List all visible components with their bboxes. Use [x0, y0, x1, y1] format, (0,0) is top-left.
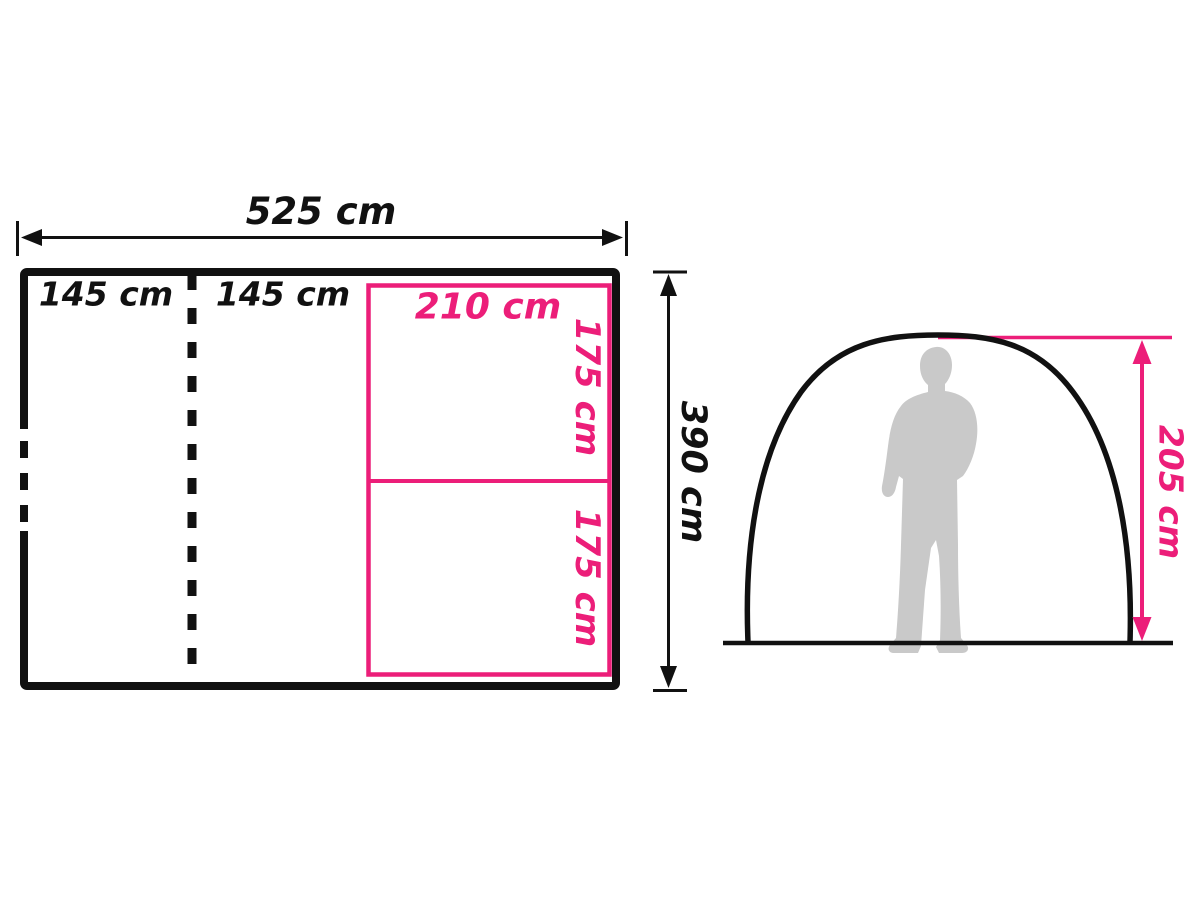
depth-dimension: 390 cm [653, 272, 713, 691]
overall-depth-label: 390 cm [673, 401, 713, 543]
peak-height-label: 205 cm [1151, 425, 1190, 559]
overall-width-label: 525 cm [246, 190, 397, 233]
middle-section-label: 145 cm [216, 275, 350, 314]
width-dimension: 525 cm [18, 190, 627, 256]
height-arrowhead-down-icon [1133, 617, 1152, 641]
left-section-label: 145 cm [39, 275, 173, 314]
floor-plan: 525 cm 145 cm 145 cm 210 cm 175 cm 175 c… [14, 190, 713, 691]
sleeping-area-width-label: 210 cm [415, 287, 562, 328]
tent-dimensions-diagram: 525 cm 145 cm 145 cm 210 cm 175 cm 175 c… [0, 0, 1200, 900]
diagram-svg: 525 cm 145 cm 145 cm 210 cm 175 cm 175 c… [0, 0, 1200, 900]
height-dimension: 205 cm [1133, 340, 1191, 641]
sleeping-cabin-bottom-label: 175 cm [567, 509, 607, 647]
height-arrowhead-up-icon [1133, 340, 1152, 364]
depth-arrowhead-up-icon [660, 274, 677, 296]
tent-side-view: 205 cm [723, 335, 1190, 653]
sleeping-area: 210 cm 175 cm 175 cm [367, 286, 611, 675]
width-arrowhead-right-icon [602, 229, 623, 246]
depth-arrowhead-down-icon [660, 666, 677, 688]
width-arrowhead-left-icon [21, 229, 42, 246]
person-silhouette [882, 347, 978, 653]
sleeping-cabin-top-label: 175 cm [567, 318, 607, 456]
